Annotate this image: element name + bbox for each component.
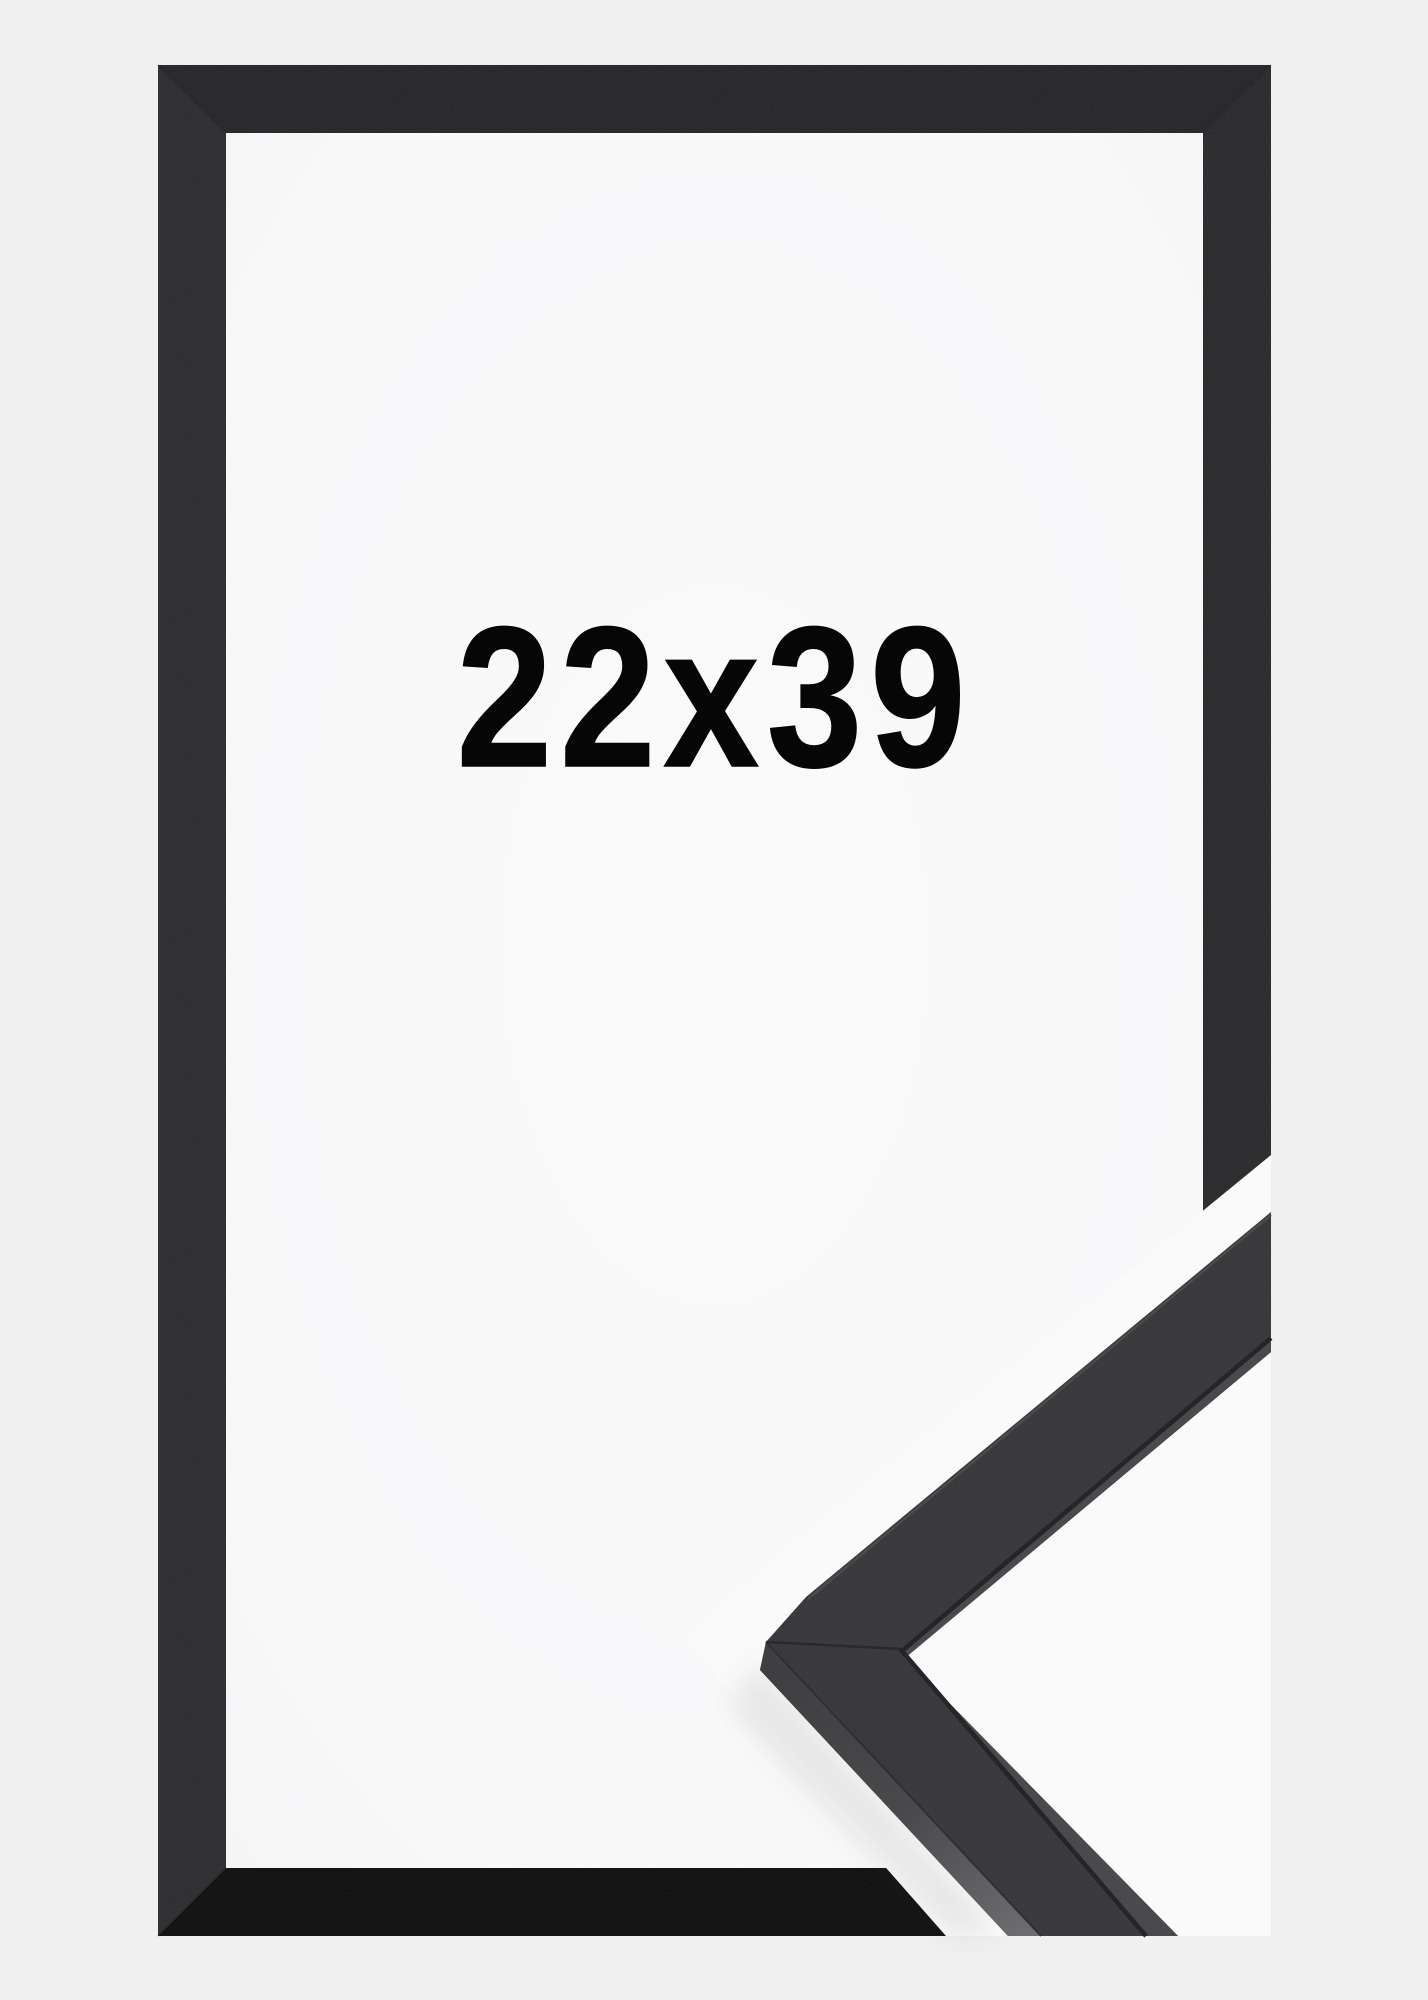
svg-text:22x39: 22x39 [457,585,974,809]
